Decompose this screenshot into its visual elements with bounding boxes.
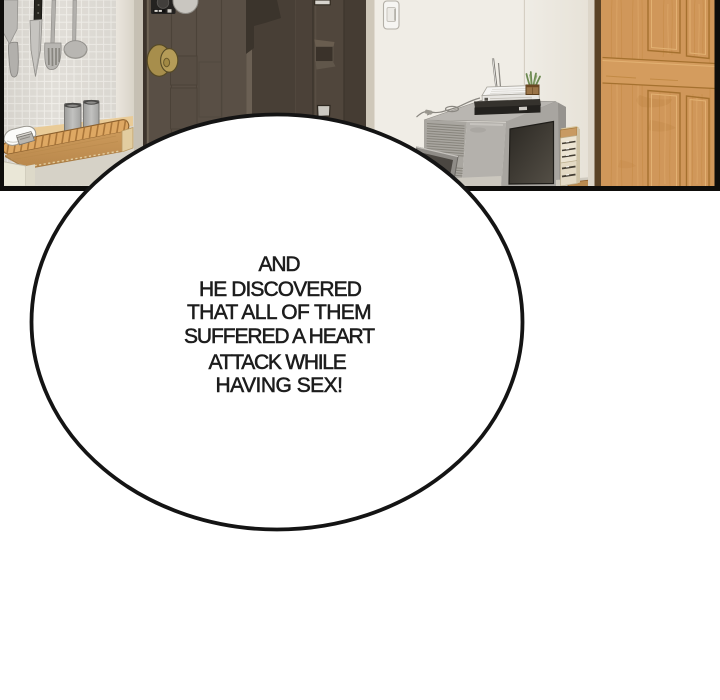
svg-text:THAT ALL OF THEM: THAT ALL OF THEM: [187, 301, 371, 324]
svg-text:HE DISCOVERED: HE DISCOVERED: [199, 278, 362, 301]
svg-text:ATTACK WHILE: ATTACK WHILE: [209, 351, 347, 374]
svg-text:SUFFERED A HEART: SUFFERED A HEART: [184, 325, 375, 348]
svg-text:HAVING SEX!: HAVING SEX!: [215, 374, 342, 397]
svg-text:AND: AND: [258, 253, 300, 276]
